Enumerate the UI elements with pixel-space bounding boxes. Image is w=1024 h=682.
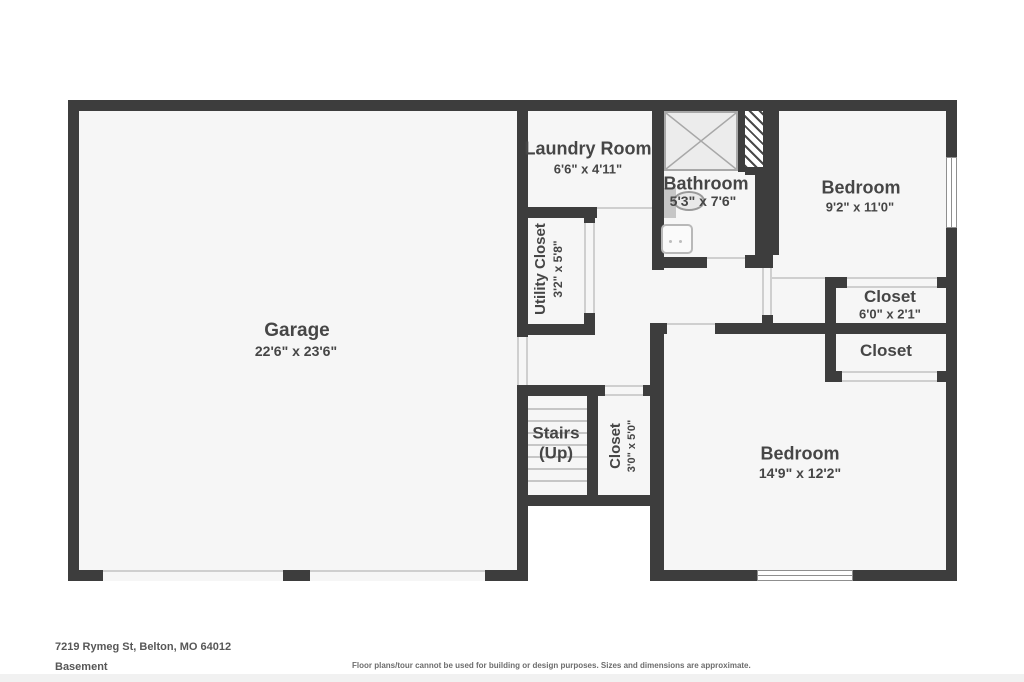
stair-tread (528, 408, 587, 410)
floor-area (68, 100, 957, 581)
window-bedroom-lower (757, 570, 853, 581)
wall-closets-mid (825, 323, 946, 334)
garage-hall-door-line-b (526, 337, 528, 385)
closet-lower-door-line-b (842, 380, 937, 382)
stair-tread (528, 468, 587, 470)
room-dims-closet-upper: 6'0" x 2'1" (859, 308, 921, 323)
wall-bathroom-corner (745, 255, 773, 268)
wall-closet-lower-bottom-b (937, 371, 947, 382)
window-pane-line (951, 158, 952, 227)
room-label-laundry: Laundry Room (524, 139, 651, 160)
wall-bedroom-lower-bottom-b (853, 570, 947, 581)
laundry-door-opening (597, 207, 652, 209)
sink-detail (679, 240, 682, 243)
window-bedroom-upper (946, 157, 957, 228)
floorplan-page: Garage 22'6" x 23'6" Laundry Room 6'6" x… (0, 0, 1024, 682)
floor-level-label: Basement (55, 661, 108, 673)
room-dims-bedroom-lower: 14'9" x 12'2" (759, 465, 841, 481)
room-label-closet-lower: Closet (860, 341, 912, 361)
garage-door-opening-2 (310, 570, 485, 572)
wall-stairs-block-bottom (517, 495, 664, 506)
room-label-bedroom-lower: Bedroom (760, 444, 839, 465)
room-label-stairs: Stairs (Up) (532, 423, 579, 462)
stairs-line2: (Up) (532, 443, 579, 463)
garage-door-opening-1 (103, 570, 283, 572)
footer-bar (0, 674, 1024, 682)
stair-tread (528, 420, 587, 422)
room-label-bathroom: Bathroom (664, 174, 749, 195)
wall-bedroom-lower-top-b (715, 323, 825, 334)
shower-fixture (664, 111, 738, 171)
closet-hall-door-line-a (605, 385, 643, 387)
room-label-bedroom-upper: Bedroom (821, 178, 900, 199)
wall-bathroom-bottom (652, 257, 707, 268)
wall-bedroom-lower-bottom-a (653, 570, 757, 581)
closet-hall-door-line-b (605, 394, 643, 396)
room-label-utility-closet: Utility Closet 3'2" x 5'8" (532, 223, 566, 315)
wall-utility-bottom (517, 324, 595, 335)
bedroom-upper-door-opening (771, 277, 825, 279)
utility-closet-dims: 3'2" x 5'8" (551, 223, 566, 315)
room-label-closet-hall: Closet 3'0" x 5'0" (607, 420, 640, 472)
wall-garage-right-b (517, 385, 528, 581)
disclaimer-text: Floor plans/tour cannot be used for buil… (352, 661, 751, 670)
wall-garage-bottom-a (68, 570, 103, 581)
stair-tread (528, 480, 587, 482)
wall-closet-upper-top-b (937, 277, 947, 288)
closet-hall-dims: 3'0" x 5'0" (626, 420, 640, 472)
wall-garage-right-a (517, 100, 528, 337)
wall-stairs-right (587, 385, 598, 506)
utility-door-line-a (584, 223, 586, 313)
wall-top (68, 100, 957, 111)
sink-fixture (661, 224, 693, 254)
room-dims-bathroom: 5'3" x 7'6" (670, 193, 737, 209)
utility-door-line-b (593, 223, 595, 313)
garage-hall-door-line-a (517, 337, 519, 385)
closet-hall-name: Closet (607, 420, 626, 472)
chimney-chase-hatch (745, 111, 763, 167)
room-label-closet-upper: Closet (864, 287, 916, 307)
wall-utility-right-a (584, 207, 595, 223)
wall-garage-bottom-b (283, 570, 310, 581)
room-label-garage: Garage (264, 320, 329, 342)
room-dims-laundry: 6'6" x 4'11" (554, 163, 622, 178)
room-dims-garage: 22'6" x 23'6" (255, 343, 337, 359)
closet-upper-door-line-a (847, 277, 937, 279)
bedroom-lower-door-opening (667, 323, 715, 325)
sink-detail (669, 240, 672, 243)
wall-left (68, 100, 79, 581)
wall-bedroom-lower-left (650, 323, 664, 581)
property-address: 7219 Rymeg St, Belton, MO 64012 (55, 641, 231, 653)
bathroom-door-opening (707, 257, 745, 259)
room-dims-bedroom-upper: 9'2" x 11'0" (826, 201, 894, 216)
exterior-notch (528, 506, 653, 581)
bedroom-upper-door-line-b (770, 268, 772, 315)
shower-x-lines (666, 113, 736, 169)
closet-lower-door-line-a (842, 371, 937, 373)
wall-closet-lower-bottom-a (825, 371, 842, 382)
stairs-line1: Stairs (532, 423, 579, 443)
utility-closet-name: Utility Closet (532, 223, 551, 315)
window-pane-line (758, 575, 852, 576)
wall-stairs-top-b (643, 385, 664, 396)
bedroom-upper-door-line-a (762, 268, 764, 315)
